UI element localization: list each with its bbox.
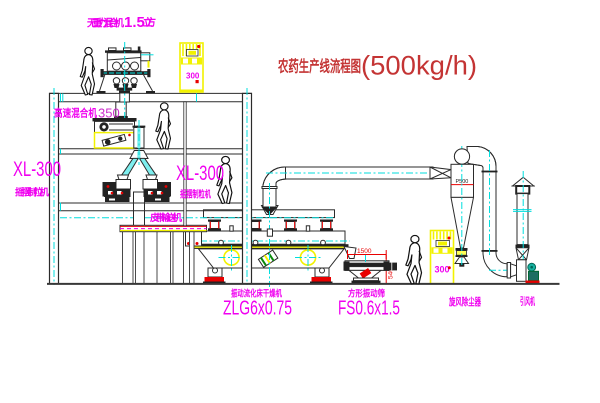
svg-text:FS0.6x1.5: FS0.6x1.5 (338, 297, 400, 320)
svg-text:1500: 1500 (357, 248, 372, 255)
svg-text:摇摆制粒机: 摇摆制粒机 (15, 187, 49, 199)
svg-text:立方: 立方 (143, 16, 156, 29)
svg-text:(500kg/h): (500kg/h) (361, 51, 477, 81)
svg-text:ZLG6x0.75: ZLG6x0.75 (223, 297, 292, 320)
svg-text:农药生产线流程图: 农药生产线流程图 (277, 57, 361, 76)
svg-text:引风机: 引风机 (520, 295, 535, 308)
svg-text:300: 300 (186, 72, 200, 81)
svg-text:皮带输送机: 皮带输送机 (149, 212, 182, 224)
svg-text:XL-300: XL-300 (13, 158, 61, 181)
svg-text:300: 300 (435, 265, 450, 275)
svg-text:高速混合机: 高速混合机 (54, 107, 97, 120)
svg-text:摇摆制粒机: 摇摆制粒机 (180, 189, 211, 201)
svg-text:XL-300: XL-300 (176, 162, 224, 185)
svg-text:无重力混合机: 无重力混合机 (86, 17, 124, 30)
svg-text:旋风除尘器: 旋风除尘器 (448, 296, 481, 309)
svg-text:1.5: 1.5 (124, 14, 145, 31)
svg-text:350: 350 (98, 106, 120, 121)
